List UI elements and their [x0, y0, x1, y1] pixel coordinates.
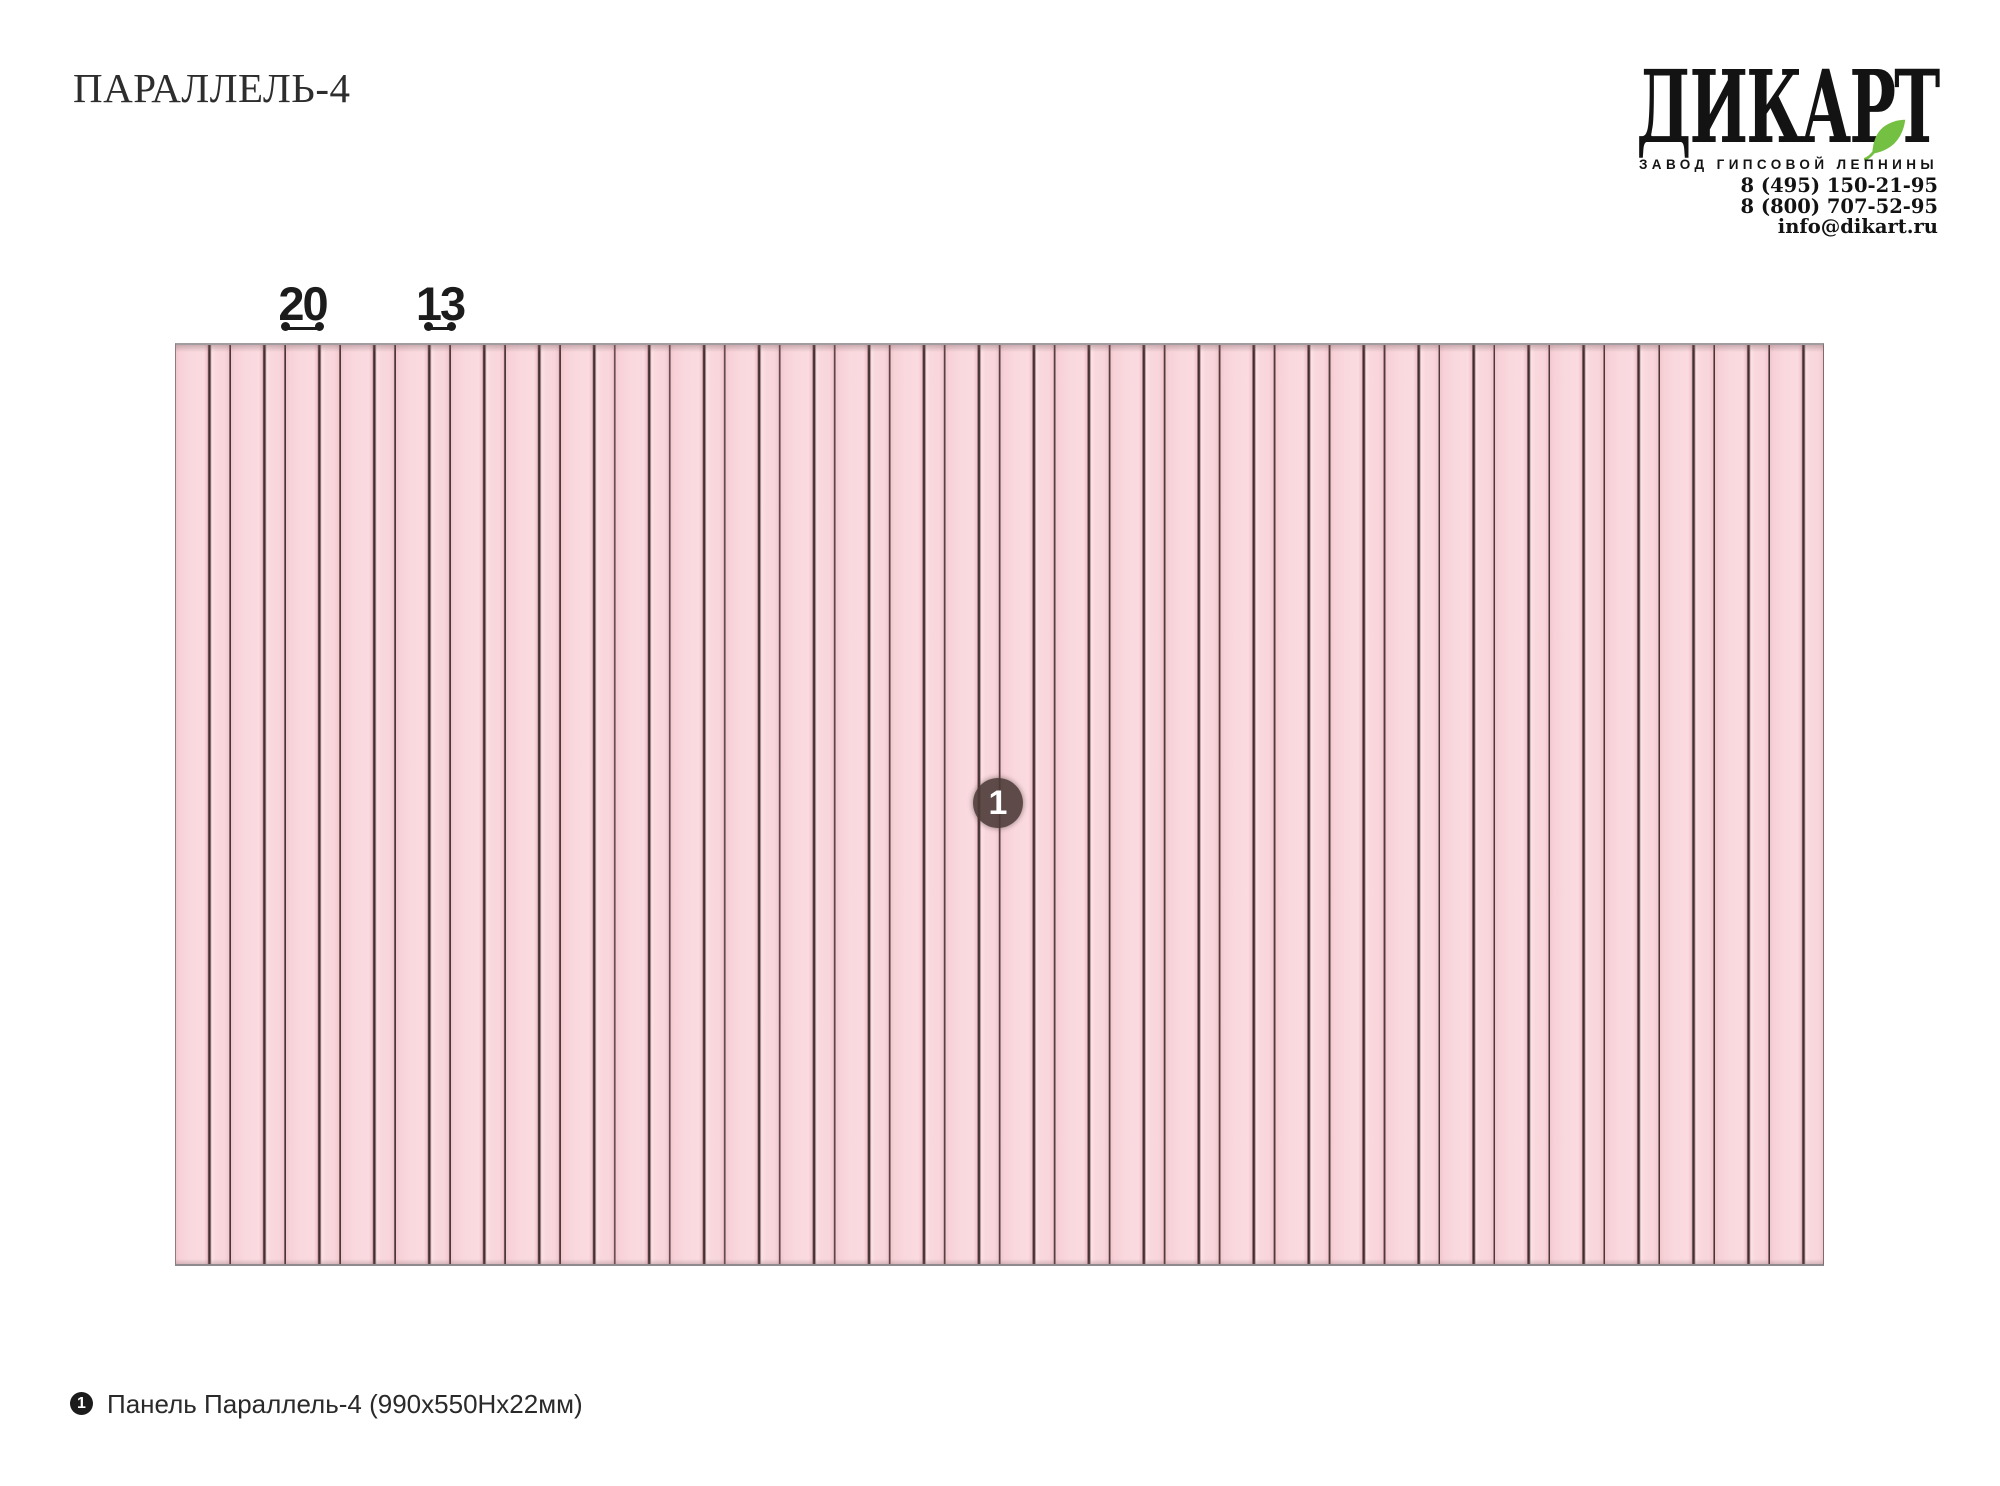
- panel-item-badge-number: 1: [989, 786, 1008, 820]
- brand-phone-1: 8 (495) 150-21-95: [1741, 176, 1938, 197]
- brand-email: info@dikart.ru: [1741, 217, 1938, 238]
- brand-contacts: 8 (495) 150-21-95 8 (800) 707-52-95 info…: [1741, 176, 1938, 238]
- product-sheet: { "page": { "title": "ПАРАЛЛЕЛЬ-4" }, "b…: [0, 0, 2000, 1486]
- dimension-line: [285, 327, 320, 330]
- panel-item-badge: 1: [973, 778, 1023, 828]
- brand-phone-2: 8 (800) 707-52-95: [1741, 197, 1938, 218]
- dimension-line: [428, 327, 452, 330]
- dimension-dot: [447, 322, 456, 331]
- legend-row: 1 Панель Параллель-4 (990х550Нх22мм): [70, 1390, 583, 1417]
- legend-label: Панель Параллель-4 (990х550Нх22мм): [107, 1391, 583, 1417]
- dimension-narrow-value: 13: [340, 280, 540, 327]
- dimension-dot: [315, 322, 324, 331]
- leaf-icon: [1864, 116, 1908, 162]
- legend-marker-icon: 1: [70, 1392, 93, 1415]
- brand-tagline: ЗАВОД ГИПСОВОЙ ЛЕПНИНЫ: [1639, 157, 1938, 172]
- dimension-dot: [281, 322, 290, 331]
- dimension-dot: [424, 322, 433, 331]
- page-title: ПАРАЛЛЕЛЬ-4: [73, 68, 351, 109]
